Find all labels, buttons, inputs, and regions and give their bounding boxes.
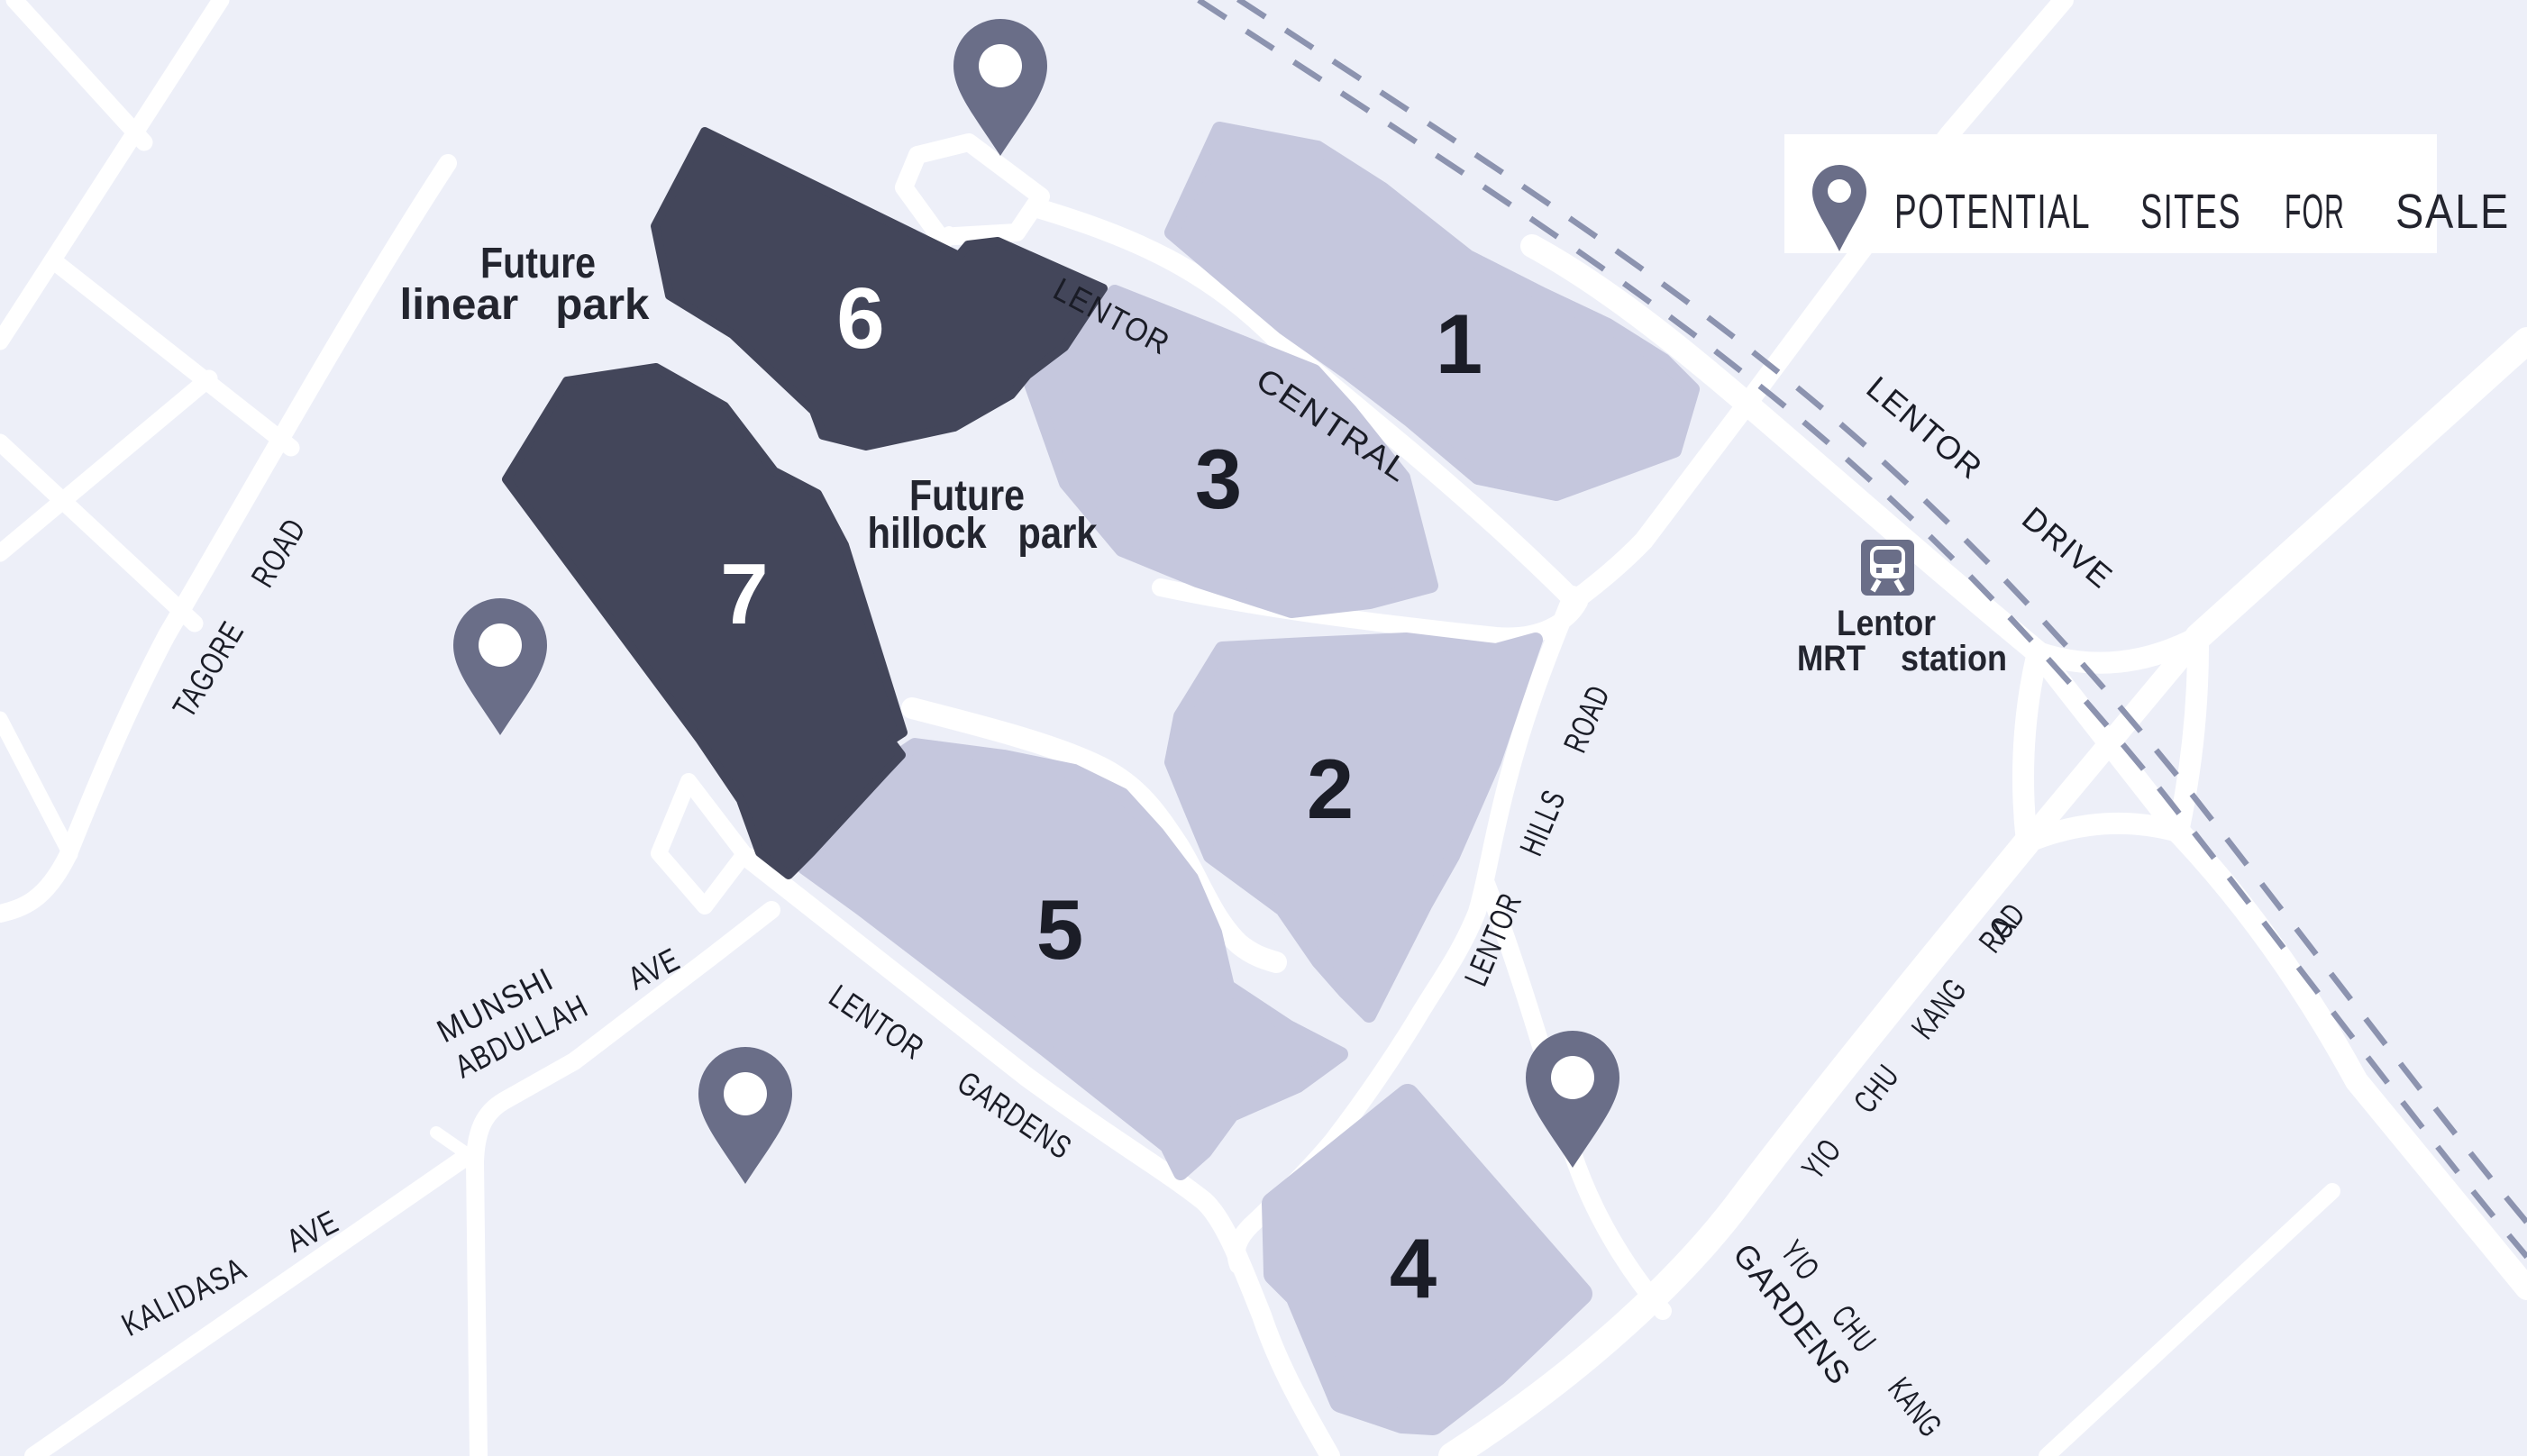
svg-text:hillock park: hillock park: [868, 510, 1098, 558]
svg-text:3: 3: [1195, 432, 1242, 526]
svg-text:2: 2: [1307, 742, 1354, 836]
svg-text:SALE: SALE: [2395, 185, 2510, 239]
svg-text:station: station: [1901, 639, 2007, 678]
svg-text:MRT: MRT: [1797, 639, 1866, 678]
svg-text:1: 1: [1436, 296, 1482, 391]
svg-text:SITES: SITES: [2140, 185, 2241, 239]
svg-text:7: 7: [720, 546, 768, 642]
svg-text:6: 6: [836, 270, 884, 367]
svg-text:4: 4: [1390, 1221, 1437, 1315]
svg-text:Lentor: Lentor: [1837, 604, 1936, 643]
svg-text:FOR: FOR: [2285, 185, 2345, 239]
svg-text:5: 5: [1036, 882, 1083, 977]
svg-text:linear park: linear park: [400, 281, 650, 329]
svg-text:POTENTIAL: POTENTIAL: [1894, 185, 2091, 239]
